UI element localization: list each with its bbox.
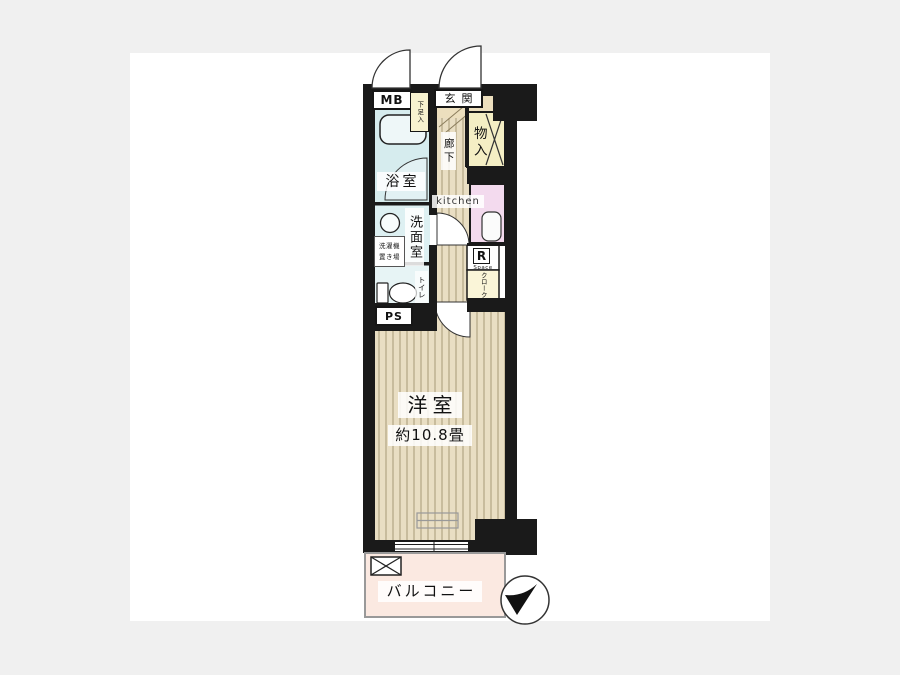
- cloak-label: クローク: [477, 271, 489, 299]
- toilet-label: トイレ: [415, 271, 428, 303]
- balcony-drain-box: [371, 557, 401, 575]
- pipe-space-label: PS: [375, 306, 413, 326]
- toilet-tank-icon: [377, 283, 388, 303]
- sink-icon: [381, 214, 400, 233]
- entrance-label: 玄関: [434, 89, 483, 108]
- bathroom-label: 浴室: [377, 172, 425, 191]
- washroom-label: 洗面室: [405, 208, 424, 266]
- north-arrow-icon: [501, 576, 549, 624]
- kitchen-sink-icon: [482, 212, 501, 241]
- kitchen-label: kitchen: [432, 195, 484, 208]
- main-room-label: 洋室: [398, 392, 462, 418]
- washer-space-line1: 洗濯機: [379, 241, 400, 251]
- meter-box-door-arc: [372, 50, 410, 88]
- washer-space-line2: 置き場: [379, 252, 400, 262]
- entrance-door-arc: [439, 46, 481, 88]
- hallway-label: 廊下: [441, 132, 456, 170]
- wall-divider: [375, 202, 430, 206]
- refrigerator-label: R: [473, 248, 490, 264]
- toilet-icon: [390, 283, 417, 303]
- floor-strip: [467, 312, 505, 331]
- balcony-label: バルコニー: [378, 581, 482, 602]
- storage-label: 物入: [469, 118, 487, 166]
- shoe-storage-label: 下足入: [410, 92, 429, 132]
- meter-box-label: MB: [372, 90, 412, 110]
- main-room-size-label: 約10.8畳: [388, 425, 472, 446]
- washer-space-label: 洗濯機 置き場: [374, 236, 405, 267]
- floorplan-image: MB 玄関 下足入 物入 廊下 kitchen 浴室 洗面室 洗濯機 置き場 ト…: [0, 0, 900, 675]
